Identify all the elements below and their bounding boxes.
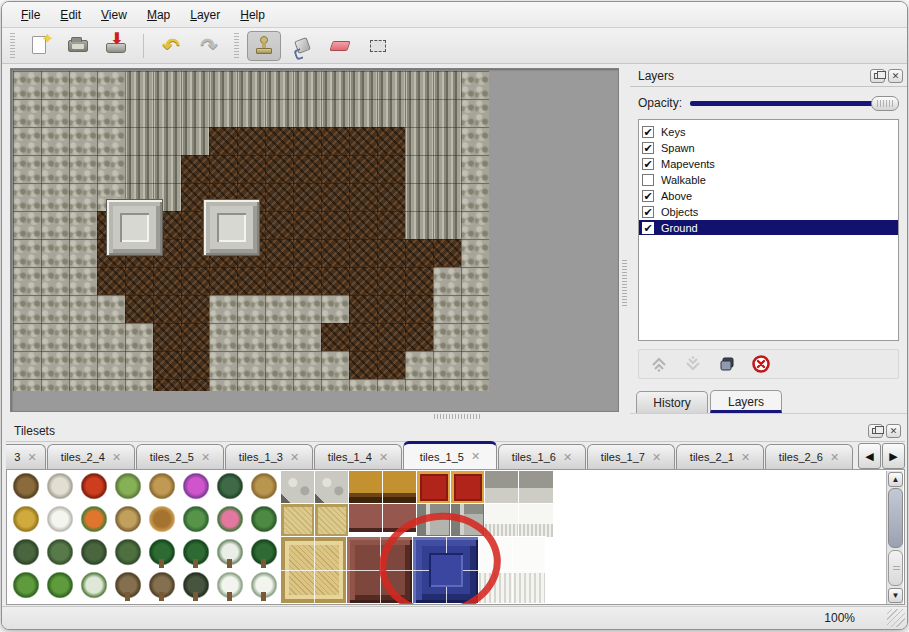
tileset-tab-label: 3 — [14, 451, 20, 463]
map-tile-dirt-floor — [321, 239, 349, 267]
map-row — [13, 295, 489, 323]
opacity-slider[interactable] — [690, 95, 899, 111]
float-panel-icon[interactable] — [870, 69, 885, 83]
menu-item-edit[interactable]: Edit — [51, 5, 90, 25]
map-tile-rock-scales — [293, 295, 321, 323]
undo-icon: ↶ — [160, 35, 182, 57]
close-tab-icon[interactable]: ✕ — [201, 451, 210, 464]
map-tile-dirt-floor — [293, 127, 321, 155]
map-tile-rock-scales — [237, 351, 265, 379]
layer-name: Keys — [661, 126, 685, 138]
fill-tool-button[interactable] — [285, 31, 319, 61]
map-tile-rock-scales — [13, 295, 41, 323]
layer-visibility-checkbox[interactable]: ✔ — [642, 206, 654, 218]
map-tile-rock-scales — [13, 351, 41, 379]
palette-tile-blue-pedestal-selected[interactable] — [413, 537, 479, 603]
tileset-tab-tiles_2_4[interactable]: tiles_2_4✕ — [47, 444, 135, 469]
map-tile-dirt-floor — [209, 127, 237, 155]
map-tile-rock-scales — [41, 267, 69, 295]
scroll-down-icon[interactable]: ▼ — [888, 588, 903, 603]
tileset-tab-tiles_1_3[interactable]: tiles_1_3✕ — [225, 444, 313, 469]
palette-tile-lily-pad[interactable] — [247, 504, 281, 537]
layer-visibility-checkbox[interactable]: ✔ — [642, 190, 654, 202]
palette-tile-stump[interactable] — [111, 471, 145, 504]
map-tile-rock-scales — [13, 183, 41, 211]
map-tile-cliff-face — [265, 99, 293, 127]
map-row — [13, 71, 489, 99]
layer-visibility-checkbox[interactable]: ✔ — [642, 126, 654, 138]
map-tile-rock-scales — [209, 379, 237, 391]
palette-tile-white-curtain[interactable] — [479, 537, 545, 603]
map-row — [13, 99, 489, 127]
map-tile-dirt-floor — [293, 267, 321, 295]
map-tile-rock-scales — [69, 127, 97, 155]
palette-row — [9, 537, 281, 570]
save-icon: ⬇ — [105, 35, 127, 57]
map-tile-rock-scales — [97, 127, 125, 155]
tileset-tab-label: tiles_2_4 — [61, 451, 105, 463]
opacity-row: Opacity: — [630, 87, 907, 117]
map-tile-dirt-floor — [349, 295, 377, 323]
palette-tile-snow-pine[interactable] — [247, 570, 281, 603]
palette-tile-hay-mound[interactable] — [9, 504, 43, 537]
map-tile-rock-scales — [13, 267, 41, 295]
map-tile-rock-scales — [41, 71, 69, 99]
map-tile-rock-scales — [433, 351, 461, 379]
map-tile-rock-scales — [41, 351, 69, 379]
map-tile-cliff-face — [209, 99, 237, 127]
palette-row — [281, 504, 553, 537]
map-tile-rock-scales — [433, 323, 461, 351]
scroll-up-icon[interactable]: ▲ — [888, 472, 903, 487]
map-row — [13, 127, 489, 155]
new-file-icon: ✦ — [29, 35, 51, 57]
layer-visibility-checkbox[interactable]: ✔ — [642, 222, 654, 234]
opacity-slider-handle[interactable] — [871, 96, 899, 111]
map-tile-rock-scales — [69, 379, 97, 391]
map-tile-dirt-floor — [377, 183, 405, 211]
redo-button[interactable]: ↷ — [192, 31, 226, 61]
tileset-tab-label: tiles_2_6 — [779, 451, 823, 463]
map-tile-rock-scales — [69, 295, 97, 323]
map-tile-rock-scales — [461, 323, 489, 351]
layers-dock-header: Layers ✕ — [630, 65, 907, 87]
palette-tile-trunk[interactable] — [9, 471, 43, 504]
float-panel-icon[interactable] — [868, 424, 883, 438]
palette-tile-maroon-table[interactable] — [347, 537, 413, 603]
tileset-tab-label: tiles_1_7 — [601, 451, 645, 463]
palette-tile-dry-grass[interactable] — [111, 504, 145, 537]
map-tile-rock-scales — [97, 155, 125, 183]
palette-tile-dead-tree-tall[interactable] — [111, 570, 145, 603]
scrollbar-track-shade — [888, 488, 903, 548]
palette-tile-maroon-seat[interactable] — [383, 504, 417, 537]
map-tile-dirt-floor — [377, 267, 405, 295]
menu-bar: FileEditViewMapLayerHelp — [2, 2, 907, 28]
scrollbar-thumb[interactable] — [888, 550, 903, 586]
palette-tile-stone-floor[interactable] — [281, 471, 315, 504]
map-row — [13, 379, 489, 391]
map-tile-rock-scales — [321, 295, 349, 323]
map-tile-rock-scales — [97, 379, 125, 391]
map-tile-rock-scales — [69, 351, 97, 379]
map-tile-cliff-face — [405, 71, 433, 99]
map-tile-rock-scales — [69, 99, 97, 127]
map-tile-rock-scales — [13, 99, 41, 127]
open-folder-icon — [67, 35, 89, 57]
map-tile-cliff-face — [405, 155, 433, 183]
close-panel-icon[interactable]: ✕ — [886, 424, 901, 438]
layers-dock: Layers ✕ Opacity: ✔Keys✔Spawn✔MapeventsW… — [630, 65, 907, 414]
map-tile-dirt-floor — [405, 267, 433, 295]
tileset-palette: ▲ ▼ — [6, 470, 905, 605]
map-tile-cliff-face — [349, 99, 377, 127]
palette-tile-bush-snow[interactable] — [77, 570, 111, 603]
layer-row-ground[interactable]: ✔Ground — [639, 220, 898, 235]
palette-vertical-scrollbar[interactable]: ▲ ▼ — [886, 471, 903, 604]
map-tile-rock-scales — [41, 295, 69, 323]
palette-tile-tan-carpet[interactable] — [281, 504, 315, 537]
map-tile-rock-scales — [125, 379, 153, 391]
palette-tile-shrubs[interactable] — [77, 537, 111, 570]
close-tab-icon[interactable]: ✕ — [112, 451, 121, 464]
map-object-pedestal — [106, 199, 163, 256]
layer-row-above[interactable]: ✔Above — [639, 188, 898, 203]
map-tile-dirt-floor — [293, 239, 321, 267]
map-tile-cliff-face — [405, 99, 433, 127]
map-tile-dirt-floor — [433, 239, 461, 267]
layer-visibility-checkbox[interactable]: ✔ — [642, 158, 654, 170]
palette-tile-stone-floor[interactable] — [315, 471, 349, 504]
map-tile-dirt-floor — [209, 267, 237, 295]
map-tile-cliff-face — [125, 71, 153, 99]
palette-tile-bush[interactable] — [9, 570, 43, 603]
map-tile-rock-scales — [237, 379, 265, 391]
palette-tile-tan-carpet[interactable] — [315, 504, 349, 537]
map-tile-rock-scales — [13, 155, 41, 183]
app-window: FileEditViewMapLayerHelp ✦⬇↶↷ Layers ✕ O… — [1, 1, 908, 630]
palette-row — [9, 570, 281, 603]
save-button[interactable]: ⬇ — [99, 31, 133, 61]
map-tile-cliff-face — [321, 71, 349, 99]
map-tile-dirt-floor — [405, 295, 433, 323]
layer-name: Objects — [661, 206, 698, 218]
palette-tile-shrubs[interactable] — [9, 537, 43, 570]
layer-visibility-checkbox[interactable]: ✔ — [642, 142, 654, 154]
palette-tile-palm-tree[interactable] — [179, 537, 213, 570]
map-tile-dirt-floor — [405, 239, 433, 267]
map-tile-dirt-floor — [153, 295, 181, 323]
tileset-tab-tiles_1_5[interactable]: tiles_1_5✕ — [403, 441, 497, 469]
map-tile-cliff-face — [433, 183, 461, 211]
palette-tile-gray-wall[interactable] — [519, 471, 553, 504]
rect-select-tool-button[interactable] — [361, 31, 395, 61]
menu-item-view[interactable]: View — [92, 5, 136, 25]
tileset-tab-tiles_1_7[interactable]: tiles_1_7✕ — [587, 444, 675, 469]
palette-tile-dead-tree-tall[interactable] — [145, 570, 179, 603]
map-tile-cliff-face — [125, 127, 153, 155]
map-tile-rock-scales — [13, 239, 41, 267]
palette-row — [281, 471, 553, 504]
close-tab-icon[interactable]: ✕ — [379, 451, 388, 464]
map-tile-cliff-face — [433, 99, 461, 127]
map-tile-dirt-floor — [181, 155, 209, 183]
map-tile-dirt-floor — [237, 127, 265, 155]
close-panel-icon[interactable]: ✕ — [888, 69, 903, 83]
eraser-tool-button[interactable] — [323, 31, 357, 61]
menu-item-map[interactable]: Map — [138, 5, 179, 25]
map-tile-rock-scales — [97, 295, 125, 323]
map-tile-rock-scales — [125, 351, 153, 379]
tab-scroll-arrows: ◀ ▶ — [857, 443, 905, 469]
tileset-tab-3[interactable]: 3✕ — [6, 444, 46, 469]
fill-tool-icon — [291, 35, 313, 57]
map-tile-cliff-face — [433, 71, 461, 99]
main-area: Layers ✕ Opacity: ✔Keys✔Spawn✔MapeventsW… — [2, 65, 908, 416]
close-tab-icon[interactable]: ✕ — [290, 451, 299, 464]
palette-tile-red-carpet[interactable] — [451, 471, 485, 504]
layer-row-spawn[interactable]: ✔Spawn — [639, 140, 898, 155]
map-tile-rock-scales — [265, 323, 293, 351]
lower-layer-icon[interactable] — [683, 354, 703, 374]
palette-tile-lily-pads[interactable] — [179, 504, 213, 537]
map-tile-rock-scales — [433, 379, 461, 391]
map-row — [13, 267, 489, 295]
menu-item-help[interactable]: Help — [231, 5, 274, 25]
menu-item-file[interactable]: File — [12, 5, 49, 25]
map-tile-cliff-face — [405, 183, 433, 211]
map-tile-cliff-face — [125, 99, 153, 127]
map-row — [13, 351, 489, 379]
opacity-slider-track — [690, 101, 895, 106]
palette-tile-red-bloom[interactable] — [77, 471, 111, 504]
map-tile-dirt-floor — [321, 127, 349, 155]
layer-row-mapevents[interactable]: ✔Mapevents — [639, 156, 898, 171]
horizontal-splitter-handle[interactable] — [434, 414, 480, 419]
layer-visibility-checkbox[interactable] — [642, 174, 654, 186]
map-tile-cliff-face — [265, 71, 293, 99]
map-tile-rock-scales — [13, 323, 41, 351]
tileset-tab-tiles_2_1[interactable]: tiles_2_1✕ — [676, 444, 764, 469]
tilesets-dock-title: Tilesets — [14, 424, 865, 438]
palette-tile-twigs[interactable] — [247, 471, 281, 504]
map-tile-dirt-floor — [321, 211, 349, 239]
layer-row-objects[interactable]: ✔Objects — [639, 204, 898, 219]
palette-tile-dead-tree[interactable] — [43, 471, 77, 504]
tile-grid-line — [446, 537, 447, 603]
redo-icon: ↷ — [198, 35, 220, 57]
map-tile-rock-scales — [461, 295, 489, 323]
layer-name: Above — [661, 190, 692, 202]
dock-tab-layers[interactable]: Layers — [710, 390, 782, 413]
tile-grid-line — [347, 570, 413, 571]
map-tile-dirt-floor — [237, 267, 265, 295]
vertical-splitter-handle[interactable] — [622, 260, 627, 308]
tileset-tab-tiles_1_6[interactable]: tiles_1_6✕ — [498, 444, 586, 469]
palette-tile-gray-wall[interactable] — [485, 471, 519, 504]
toolbar-grip[interactable] — [10, 33, 15, 59]
map-tile-dirt-floor — [405, 323, 433, 351]
map-tile-dirt-floor — [181, 379, 209, 391]
map-object-pedestal — [203, 199, 260, 256]
map-tile-rock-scales — [41, 183, 69, 211]
map-tile-dirt-floor — [349, 351, 377, 379]
undo-button[interactable]: ↶ — [154, 31, 188, 61]
map-tile-rock-scales — [13, 211, 41, 239]
palette-tile-leaves[interactable] — [145, 504, 179, 537]
map-tile-rock-scales — [461, 183, 489, 211]
layer-list: ✔Keys✔Spawn✔MapeventsWalkable✔Above✔Obje… — [638, 119, 899, 341]
map-tile-rock-scales — [461, 239, 489, 267]
palette-tile-orange-flowers[interactable] — [77, 504, 111, 537]
palette-tile-bush[interactable] — [43, 570, 77, 603]
map-tile-rock-scales — [237, 295, 265, 323]
close-tab-icon[interactable]: ✕ — [471, 450, 480, 463]
duplicate-layer-icon[interactable] — [717, 354, 737, 374]
map-tile-rock-scales — [69, 239, 97, 267]
palette-tile-maroon-seat[interactable] — [349, 504, 383, 537]
palette-tile-palm-tree[interactable] — [247, 537, 281, 570]
map-tile-dirt-floor — [153, 379, 181, 391]
map-tile-cliff-face — [181, 127, 209, 155]
map-tile-rock-scales — [41, 99, 69, 127]
palette-tile-white-table[interactable] — [519, 504, 553, 537]
map-tile-cliff-face — [293, 71, 321, 99]
map-tile-rock-scales — [461, 211, 489, 239]
palette-tile-fern[interactable] — [213, 471, 247, 504]
map-row — [13, 155, 489, 183]
map-tile-cliff-face — [125, 155, 153, 183]
map-tile-dirt-floor — [321, 183, 349, 211]
stamp-tool-button[interactable] — [247, 31, 281, 61]
palette-tile-roses[interactable] — [213, 504, 247, 537]
palette-tile-red-carpet[interactable] — [417, 471, 451, 504]
map-tile-cliff-face — [433, 211, 461, 239]
palette-tile-snow-tree[interactable] — [213, 537, 247, 570]
menu-item-layer[interactable]: Layer — [181, 5, 229, 25]
tileset-tab-label: tiles_2_1 — [690, 451, 734, 463]
map-tile-dirt-floor — [209, 155, 237, 183]
tileset-tab-tiles_2_5[interactable]: tiles_2_5✕ — [136, 444, 224, 469]
map-tile-cliff-face — [153, 99, 181, 127]
map-tile-dirt-floor — [321, 323, 349, 351]
palette-tile-snow-mound[interactable] — [43, 504, 77, 537]
map-tile-dirt-floor — [349, 127, 377, 155]
map-tile-dirt-floor — [349, 211, 377, 239]
close-tab-icon[interactable]: ✕ — [830, 451, 839, 464]
map-tile-dirt-floor — [293, 183, 321, 211]
palette-tile-wood-table[interactable] — [349, 471, 383, 504]
resize-grip[interactable] — [887, 609, 905, 627]
palette-tile-snow-pine[interactable] — [213, 570, 247, 603]
map-tile-rock-scales — [69, 267, 97, 295]
map-tile-rock-scales — [377, 379, 405, 391]
palette-tile-shrub[interactable] — [111, 537, 145, 570]
close-tab-icon[interactable]: ✕ — [741, 451, 750, 464]
raise-layer-icon[interactable] — [649, 354, 669, 374]
map-tile-dirt-floor — [181, 351, 209, 379]
map-tile-cliff-face — [377, 99, 405, 127]
dock-tab-history[interactable]: History — [636, 391, 708, 413]
palette-tile-dark-tree[interactable] — [179, 570, 213, 603]
map-tile-dirt-floor — [153, 323, 181, 351]
map-canvas[interactable] — [13, 71, 489, 391]
dock-tab-bar: HistoryLayers — [630, 388, 907, 414]
layer-action-bar — [638, 349, 899, 379]
palette-tile-palm-tree[interactable] — [145, 537, 179, 570]
map-tile-dirt-floor — [321, 155, 349, 183]
opacity-label: Opacity: — [638, 96, 682, 110]
layer-row-keys[interactable]: ✔Keys — [639, 124, 898, 139]
new-file-button[interactable]: ✦ — [23, 31, 57, 61]
map-tile-rock-scales — [13, 127, 41, 155]
close-tab-icon[interactable]: ✕ — [652, 451, 661, 464]
close-tab-icon[interactable]: ✕ — [563, 451, 572, 464]
map-tile-rock-scales — [69, 323, 97, 351]
map-tile-cliff-face — [433, 127, 461, 155]
map-tile-dirt-floor — [377, 239, 405, 267]
palette-tile-tan-rug[interactable] — [281, 537, 347, 603]
palette-tile-white-table[interactable] — [485, 504, 519, 537]
map-tile-dirt-floor — [293, 211, 321, 239]
map-tile-rock-scales — [97, 71, 125, 99]
tilesets-dock-header: Tilesets ✕ — [6, 420, 905, 442]
map-tile-rock-scales — [265, 379, 293, 391]
map-tile-rock-scales — [41, 379, 69, 391]
map-tile-rock-scales — [209, 295, 237, 323]
tileset-tab-tiles_1_4[interactable]: tiles_1_4✕ — [314, 444, 402, 469]
palette-tile-shrub-cluster[interactable] — [43, 537, 77, 570]
map-tile-dirt-floor — [265, 211, 293, 239]
palette-tile-metal-blocks[interactable] — [451, 504, 485, 537]
map-tile-dirt-floor — [181, 267, 209, 295]
stamp-tool-icon — [253, 35, 275, 57]
palette-tile-palm-trunk[interactable] — [145, 471, 179, 504]
palette-tile-wood-table[interactable] — [383, 471, 417, 504]
map-tile-dirt-floor — [265, 183, 293, 211]
tab-scroll-right-icon[interactable]: ▶ — [882, 443, 905, 469]
toolbar-grip[interactable] — [234, 33, 239, 59]
map-tile-rock-scales — [237, 323, 265, 351]
map-tile-rock-scales — [265, 351, 293, 379]
layer-row-walkable[interactable]: Walkable — [639, 172, 898, 187]
map-tile-rock-scales — [461, 379, 489, 391]
map-tile-dirt-floor — [265, 155, 293, 183]
map-tile-dirt-floor — [293, 155, 321, 183]
map-tile-rock-scales — [349, 379, 377, 391]
rect-select-tool-icon — [367, 35, 389, 57]
map-tile-dirt-floor — [349, 323, 377, 351]
map-tile-cliff-face — [237, 71, 265, 99]
tab-scroll-left-icon[interactable]: ◀ — [858, 443, 881, 469]
open-folder-button[interactable] — [61, 31, 95, 61]
map-tile-cliff-face — [237, 99, 265, 127]
map-tile-cliff-face — [405, 127, 433, 155]
map-tile-rock-scales — [69, 183, 97, 211]
tileset-tab-tiles_2_6[interactable]: tiles_2_6✕ — [765, 444, 853, 469]
layer-name: Spawn — [661, 142, 695, 154]
map-tile-rock-scales — [97, 351, 125, 379]
map-tile-dirt-floor — [153, 351, 181, 379]
map-tile-rock-scales — [461, 267, 489, 295]
delete-layer-icon[interactable] — [751, 354, 771, 374]
palette-tile-purple-flowers[interactable] — [179, 471, 213, 504]
toolbar: ✦⬇↶↷ — [2, 28, 907, 64]
palette-tile-metal-blocks[interactable] — [417, 504, 451, 537]
layer-name: Mapevents — [661, 158, 715, 170]
close-tab-icon[interactable]: ✕ — [27, 451, 36, 464]
map-tile-rock-scales — [41, 127, 69, 155]
